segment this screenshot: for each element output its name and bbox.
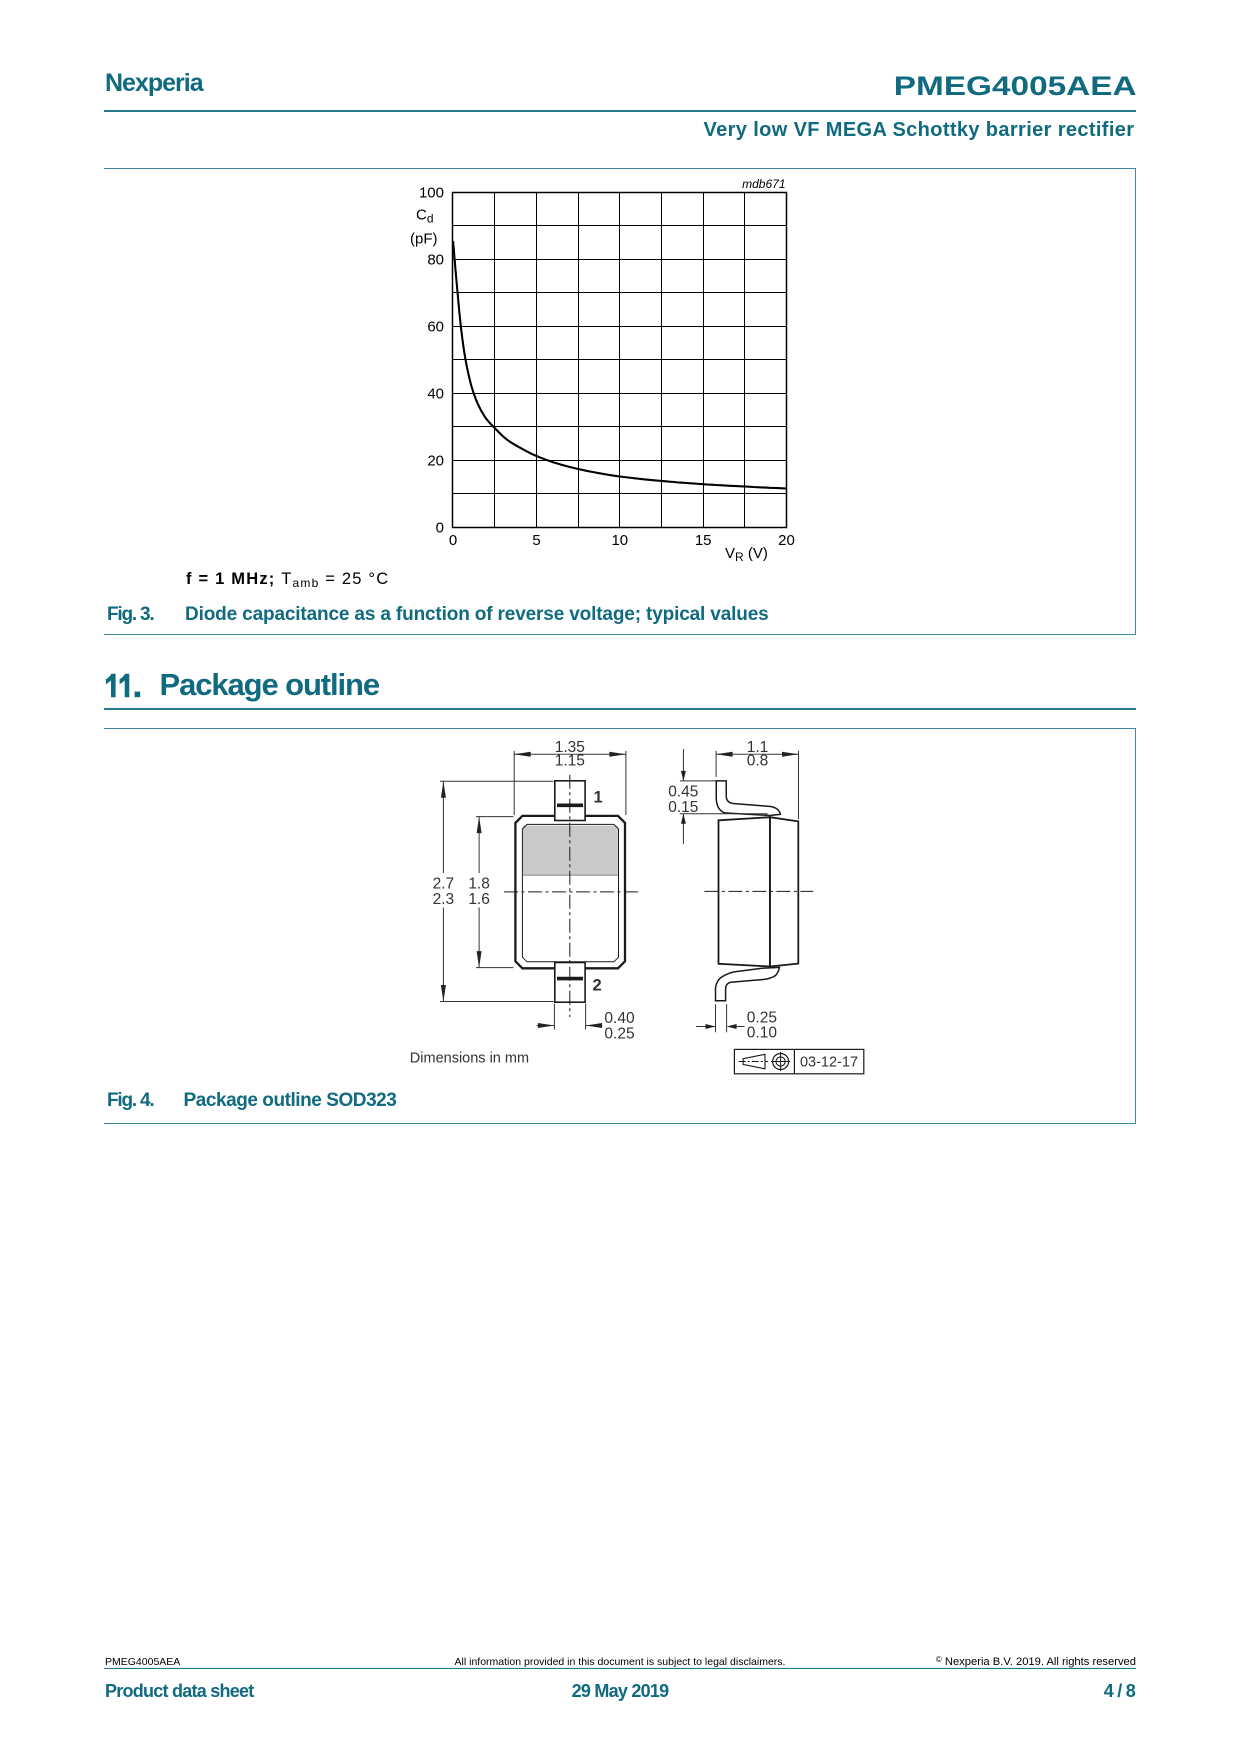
svg-text:80: 80 (427, 252, 444, 269)
svg-text:mdb671: mdb671 (742, 177, 785, 191)
svg-text:0.45: 0.45 (668, 784, 698, 801)
svg-text:2: 2 (593, 977, 602, 995)
svg-text:1.15: 1.15 (555, 753, 585, 770)
svg-text:2.3: 2.3 (433, 891, 455, 908)
svg-text:Cd: Cd (416, 207, 434, 226)
svg-text:60: 60 (427, 319, 444, 336)
svg-text:0.40: 0.40 (604, 1010, 635, 1027)
svg-text:15: 15 (695, 532, 712, 549)
svg-text:1.8: 1.8 (468, 876, 490, 893)
svg-text:2.7: 2.7 (433, 876, 455, 893)
svg-text:(pF): (pF) (410, 231, 438, 248)
svg-text:1: 1 (594, 789, 603, 807)
svg-text:0.10: 0.10 (747, 1025, 778, 1042)
svg-text:03-12-17: 03-12-17 (800, 1055, 858, 1071)
svg-text:10: 10 (611, 532, 628, 549)
svg-text:VR (V): VR (V) (725, 545, 768, 564)
svg-text:0.25: 0.25 (604, 1026, 634, 1043)
svg-text:20: 20 (427, 453, 444, 470)
svg-text:0: 0 (449, 532, 457, 549)
svg-text:0.15: 0.15 (668, 799, 698, 816)
svg-text:0: 0 (436, 520, 444, 537)
svg-text:Dimensions in mm: Dimensions in mm (410, 1051, 529, 1067)
svg-text:0.8: 0.8 (747, 753, 769, 770)
svg-text:40: 40 (427, 386, 444, 403)
svg-text:1.6: 1.6 (468, 891, 490, 908)
svg-text:100: 100 (419, 185, 444, 202)
svg-text:5: 5 (532, 532, 540, 549)
svg-text:20: 20 (778, 532, 795, 549)
